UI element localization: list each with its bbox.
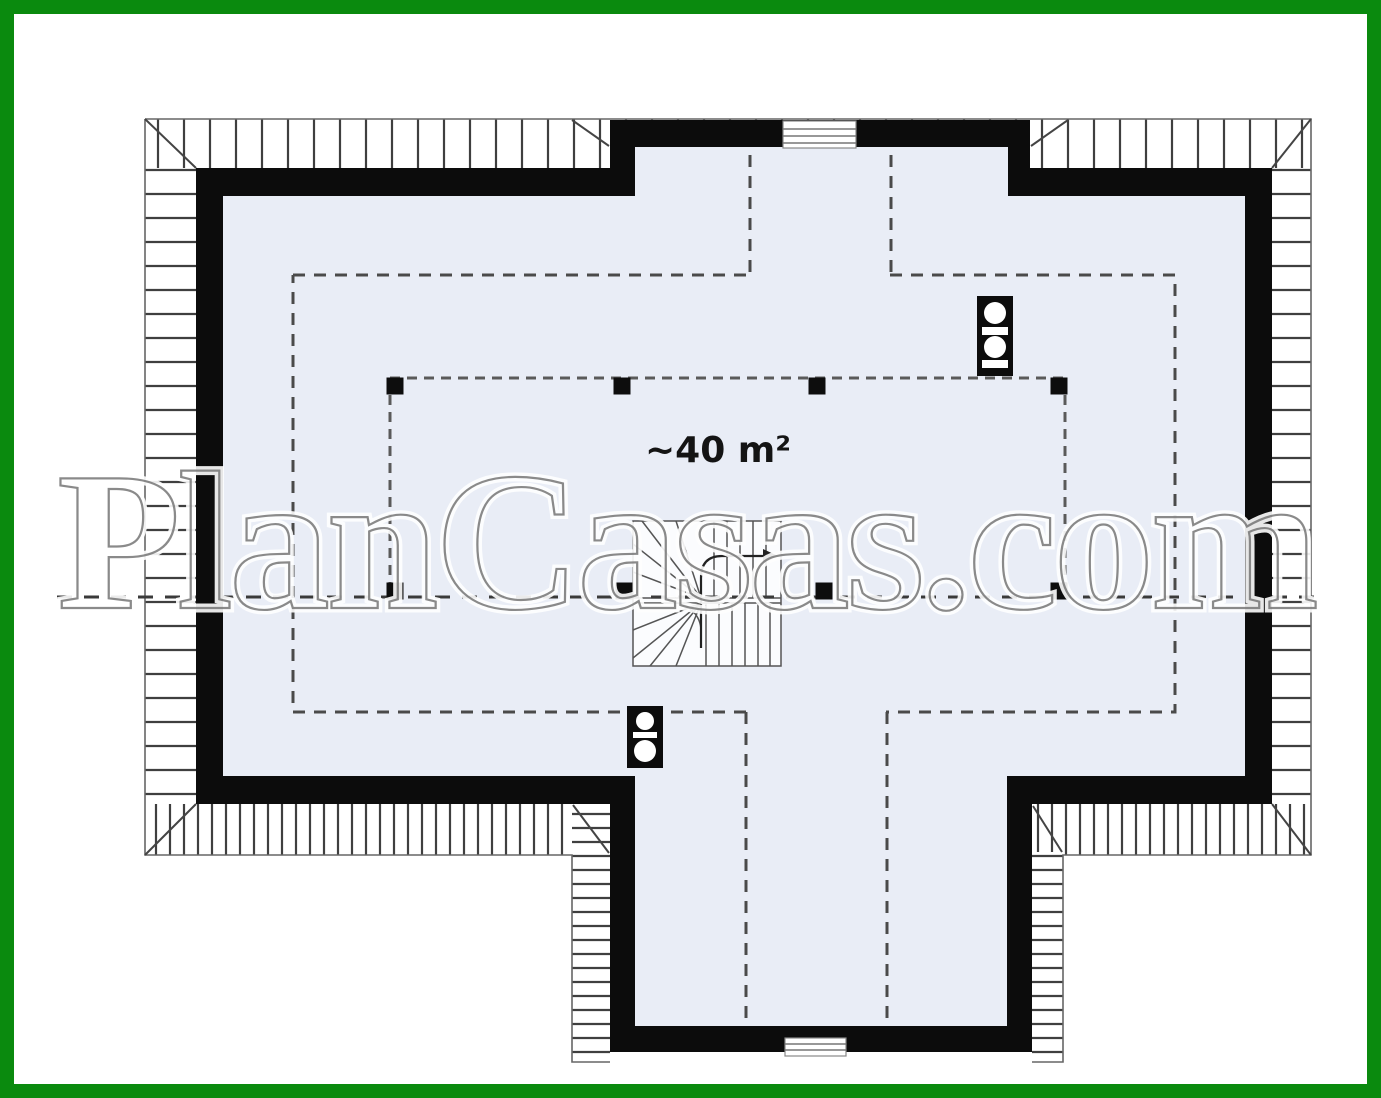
window-top bbox=[783, 121, 856, 148]
watermark-text: PlanCasas.com bbox=[57, 432, 1316, 651]
roof-eave-bottom-right bbox=[1032, 804, 1311, 855]
flue-icon bbox=[984, 302, 1006, 324]
flue-icon bbox=[984, 336, 1006, 358]
watermark: PlanCasas.com PlanCasas.com bbox=[57, 432, 1316, 651]
roof-eave-bottom-left bbox=[145, 804, 572, 855]
post bbox=[614, 378, 631, 395]
post bbox=[387, 378, 404, 395]
post bbox=[1051, 378, 1068, 395]
chimney-upper bbox=[977, 296, 1013, 376]
flue-icon bbox=[636, 712, 654, 730]
roof-strip-dormer-right bbox=[1032, 852, 1063, 1062]
window-bottom bbox=[785, 1038, 846, 1056]
floor-plan-drawing: ~40 m² PlanCasas.com PlanCasas.com bbox=[0, 0, 1381, 1098]
floor-plan-canvas: ~40 m² PlanCasas.com PlanCasas.com bbox=[0, 0, 1381, 1098]
flue-icon bbox=[634, 740, 656, 762]
post bbox=[809, 378, 826, 395]
roof-strip-dormer-left bbox=[572, 804, 610, 1062]
chimney-lower bbox=[627, 706, 663, 768]
